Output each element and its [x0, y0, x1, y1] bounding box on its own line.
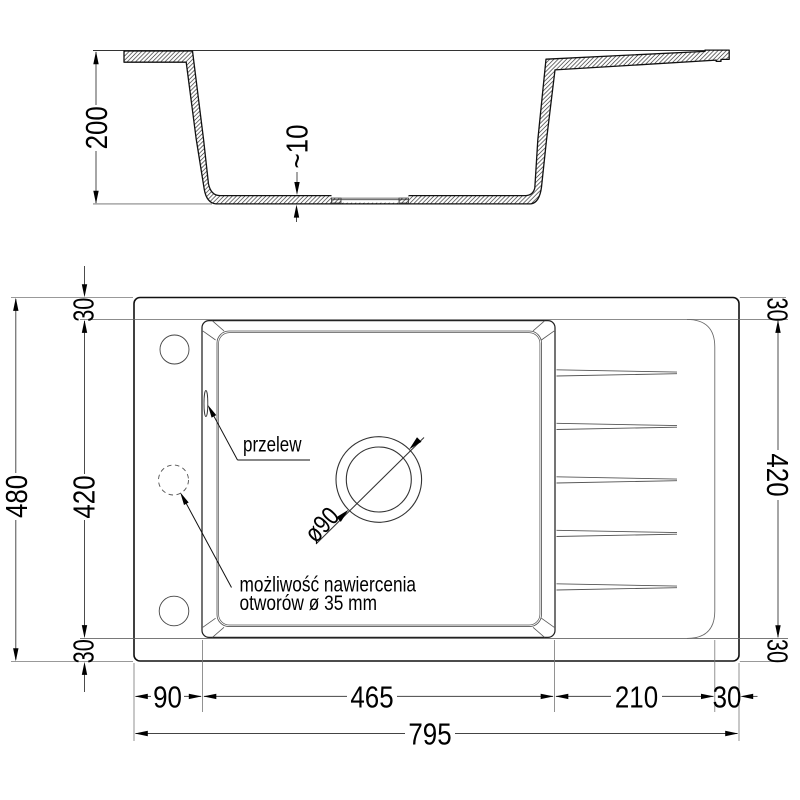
svg-text:420: 420 — [67, 475, 101, 518]
svg-text:30: 30 — [761, 297, 793, 321]
svg-text:90: 90 — [153, 679, 182, 713]
svg-text:30: 30 — [713, 679, 742, 713]
svg-text:30: 30 — [761, 639, 793, 663]
svg-text:~10: ~10 — [280, 125, 314, 169]
svg-text:30: 30 — [69, 298, 101, 322]
svg-text:480: 480 — [0, 475, 33, 518]
svg-text:otworów ø 35 mm: otworów ø 35 mm — [240, 592, 378, 615]
svg-text:210: 210 — [615, 679, 658, 713]
svg-text:420: 420 — [760, 453, 794, 496]
svg-text:465: 465 — [350, 679, 393, 713]
svg-text:przelew: przelew — [243, 434, 302, 457]
svg-text:200: 200 — [79, 106, 113, 149]
svg-text:795: 795 — [408, 716, 451, 750]
svg-text:30: 30 — [69, 639, 101, 663]
